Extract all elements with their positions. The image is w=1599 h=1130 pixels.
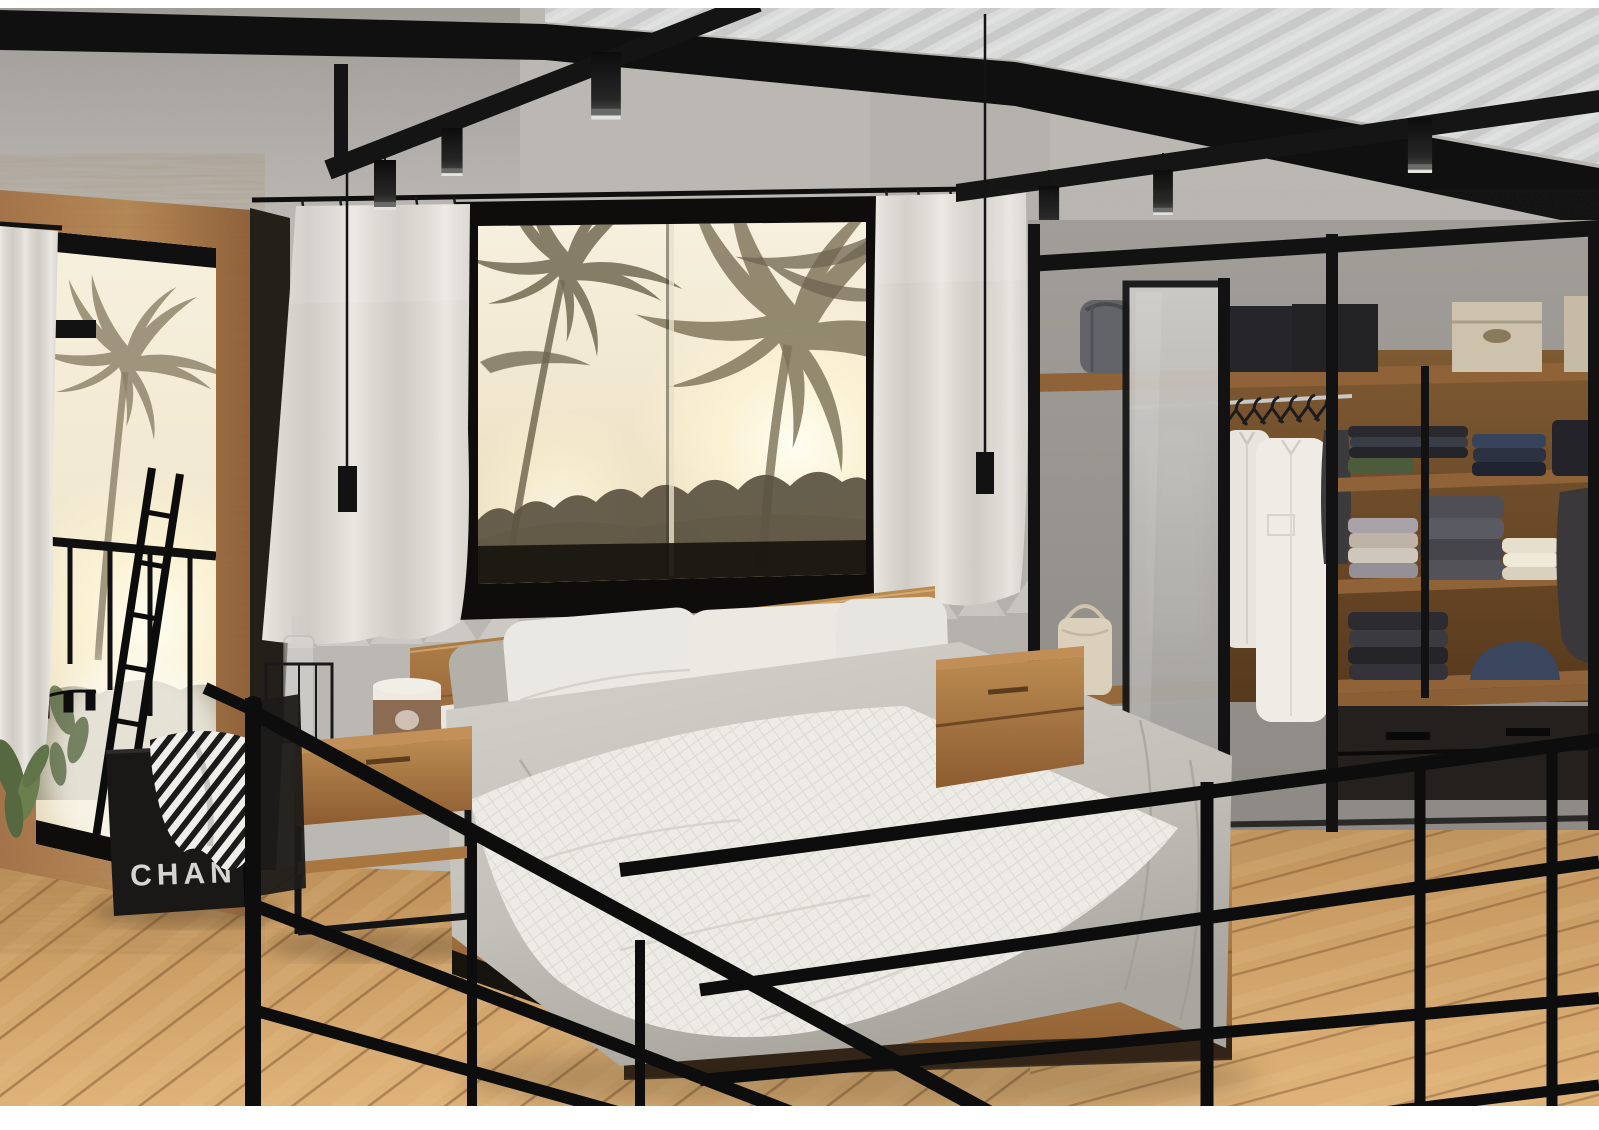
shopping-bag: CHAN xyxy=(106,731,260,916)
nightstand-right xyxy=(936,646,1084,788)
loft-bedroom-render: CHAN xyxy=(0,0,1599,1130)
beige-storage-box xyxy=(1452,302,1542,372)
curtain-left-panel xyxy=(262,204,470,644)
curtain-right-panel xyxy=(873,192,1028,606)
black-storage-box-1 xyxy=(1222,306,1292,372)
hanging-white-shirt-2 xyxy=(1256,438,1328,722)
